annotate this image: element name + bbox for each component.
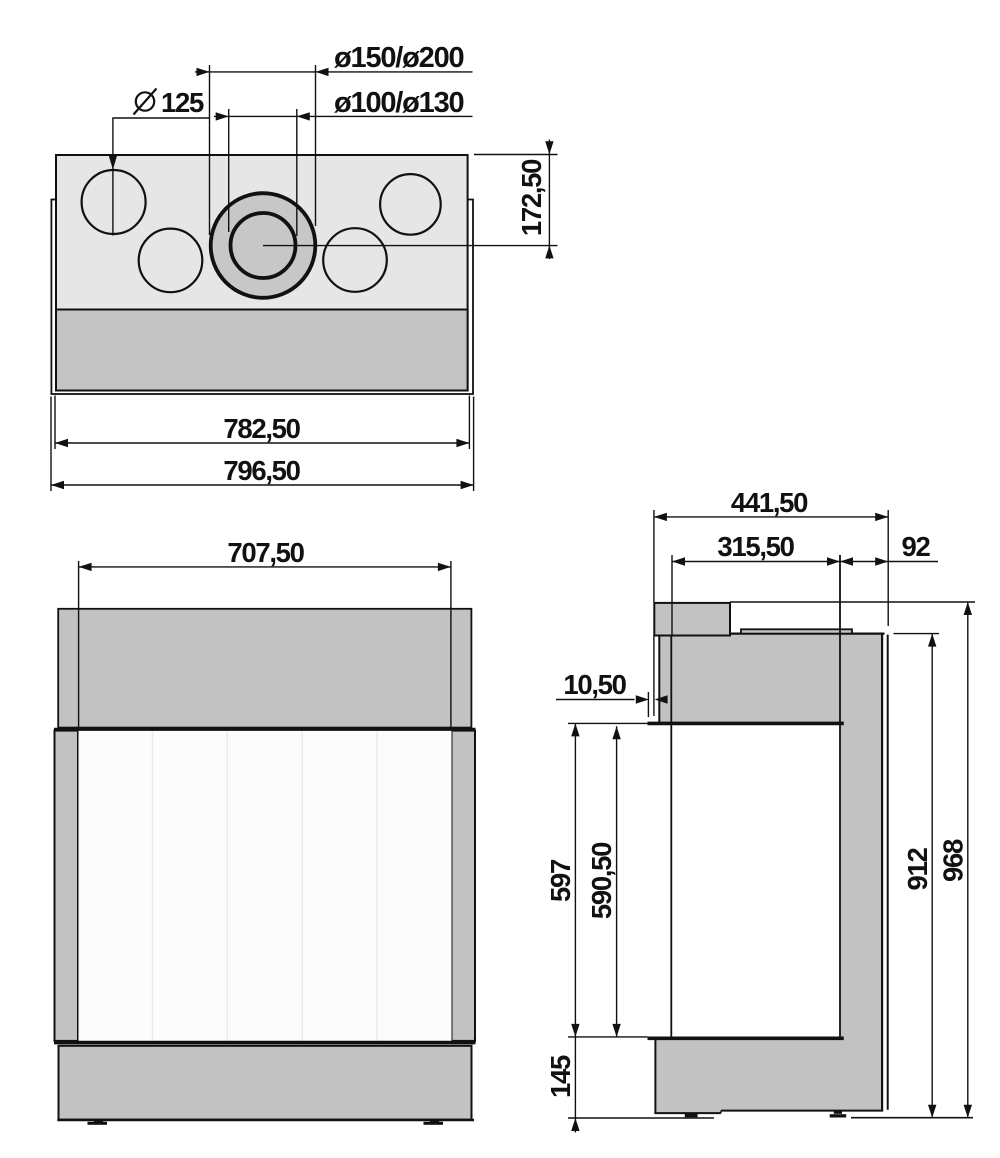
svg-text:125: 125 (161, 87, 204, 118)
svg-text:441,50: 441,50 (731, 487, 808, 518)
svg-text:597: 597 (545, 859, 576, 902)
svg-text:968: 968 (938, 839, 969, 882)
svg-text:172,50: 172,50 (516, 159, 547, 236)
svg-text:796,50: 796,50 (223, 455, 300, 486)
svg-text:782,50: 782,50 (223, 413, 300, 444)
svg-text:912: 912 (902, 848, 933, 891)
svg-text:10,50: 10,50 (563, 669, 626, 700)
svg-text:145: 145 (545, 1055, 576, 1098)
svg-text:315,50: 315,50 (717, 531, 794, 562)
svg-text:92: 92 (902, 531, 931, 562)
svg-text:707,50: 707,50 (227, 537, 304, 568)
svg-text:590,50: 590,50 (586, 842, 617, 919)
svg-text:ø150/ø200: ø150/ø200 (334, 42, 464, 74)
svg-text:ø100/ø130: ø100/ø130 (334, 87, 464, 119)
